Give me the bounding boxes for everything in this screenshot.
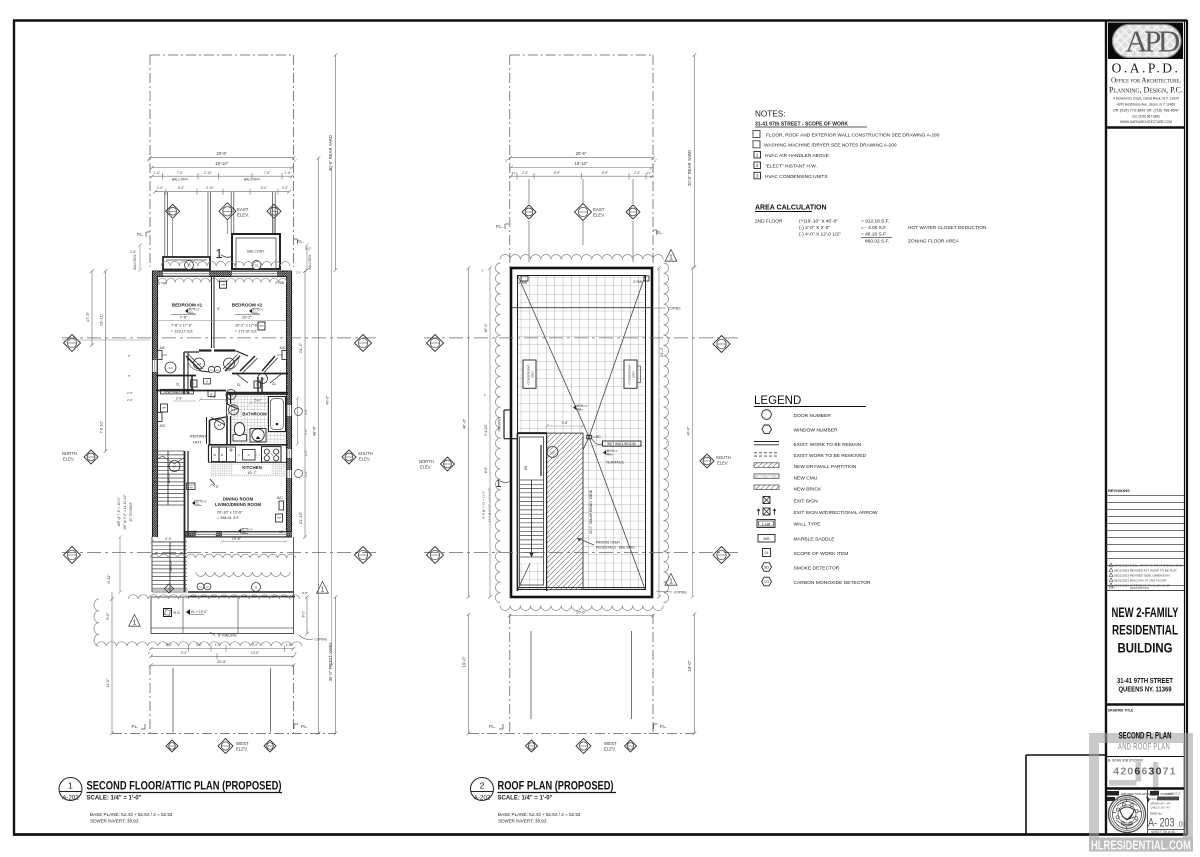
svg-text:SCALE: 1/4" = 1'-0": SCALE: 1/4" = 1'-0": [498, 796, 553, 802]
svg-text:NEW CMU: NEW CMU: [794, 475, 818, 481]
svg-text:NEW BRICK: NEW BRICK: [794, 486, 822, 492]
svg-text:= - 4.00 S.F.: = - 4.00 S.F.: [861, 225, 887, 231]
svg-text:HOT WATER CLOSET DEDUCTION: HOT WATER CLOSET DEDUCTION: [908, 225, 987, 231]
svg-text:6'-9": 6'-9": [602, 171, 608, 175]
svg-text:“ELECT” INSTANT H.W.: “ELECT” INSTANT H.W.: [765, 164, 817, 170]
svg-text:FLOOR, ROOF AND EXTERIOR WALL: FLOOR, ROOF AND EXTERIOR WALL CONSTRUCTI…: [766, 132, 940, 138]
svg-text:2HR: 2HR: [221, 284, 226, 286]
svg-text:10'-7": 10'-7": [247, 471, 257, 475]
svg-text:SOUTH: SOUTH: [358, 451, 373, 456]
svg-text:23: 23: [255, 264, 259, 268]
svg-text:BUILDING: BUILDING: [1118, 641, 1173, 656]
svg-text:R.D.: R.D.: [174, 611, 181, 615]
svg-text:WWW.OAPDARCHITECTURE.COM: WWW.OAPDARCHITECTURE.COM: [1120, 120, 1172, 124]
svg-text:SEWER INVERT: 38.93: SEWER INVERT: 38.93: [498, 819, 547, 824]
svg-text:19'-10": 19'-10": [215, 161, 229, 166]
svg-text:2-6: 2-6: [232, 408, 236, 412]
svg-text:SMOKE DETECTOR: SMOKE DETECTOR: [794, 566, 840, 572]
svg-text:19' TO ROOF: 19' TO ROOF: [129, 502, 133, 521]
svg-text:1'-6": 1'-6": [154, 171, 160, 175]
svg-text:NOTES:: NOTES:: [755, 110, 785, 119]
svg-text:BLK: BLK: [189, 312, 194, 314]
svg-text:2: 2: [480, 781, 485, 791]
svg-text:PEDESTALS - SEE DWG.: PEDESTALS - SEE DWG.: [596, 546, 636, 550]
svg-text:5": 5": [216, 485, 219, 489]
svg-text:7'-6": 7'-6": [264, 171, 270, 175]
svg-text:CL: CL: [176, 383, 180, 387]
svg-text:W.: W.: [213, 453, 216, 457]
svg-text:1: 1: [496, 478, 502, 490]
svg-text:A/C: A/C: [280, 346, 286, 350]
svg-text:4'-3": 4'-3": [165, 537, 173, 541]
svg-text:EXIT SIGN W/DIRECTIONAL ARROW: EXIT SIGN W/DIRECTIONAL ARROW: [794, 510, 878, 516]
svg-text:1: 1: [669, 254, 673, 262]
svg-text:ELEV.: ELEV.: [604, 747, 616, 752]
svg-text:SD: SD: [764, 566, 769, 570]
svg-text:MS: MS: [764, 536, 770, 541]
svg-text:16R @ 7'-6" = 10'-0": 16R @ 7'-6" = 10'-0": [117, 498, 121, 527]
svg-text:ROOF PLAN (PROPOSED): ROOF PLAN (PROPOSED): [498, 781, 614, 793]
svg-text:= 177.07 S.F.: = 177.07 S.F.: [235, 330, 258, 334]
svg-text:EXIST WORK TO BE REMOVED: EXIST WORK TO BE REMOVED: [794, 453, 867, 459]
svg-text:Planning, Design, P.C.: Planning, Design, P.C.: [1109, 86, 1183, 95]
svg-text:16R UP: 16R UP: [167, 472, 171, 483]
svg-text:18 R @ 7.33" = 11'-0": 18 R @ 7.33" = 11'-0": [482, 491, 486, 520]
svg-text:4 Governors Court, Great Nec: 4 Governors Court, Great Neck, N.Y. 1102…: [1113, 97, 1179, 101]
svg-text:P.L.: P.L.: [137, 232, 144, 237]
svg-text:P.L.: P.L.: [489, 724, 496, 729]
svg-text:6'-6": 6'-6": [484, 467, 488, 473]
svg-text:22'-0" SOLAR READY ZONE: 22'-0" SOLAR READY ZONE: [589, 489, 593, 534]
svg-text:(-) 2'-0" X 2'-0": (-) 2'-0" X 2'-0": [799, 225, 830, 231]
svg-text:EAST: EAST: [593, 207, 605, 212]
svg-text:1": 1": [481, 269, 484, 273]
svg-text:COPING: COPING: [315, 638, 328, 642]
svg-text:46'-0": 46'-0": [326, 395, 330, 405]
svg-text:SECOND FLOOR/ATTIC PLAN (PROPO: SECOND FLOOR/ATTIC PLAN (PROPOSED): [87, 781, 282, 793]
svg-text:1": 1": [295, 651, 298, 655]
svg-text:17 T @ 9 1/2" = 13'-5 1/2": 17 T @ 9 1/2" = 13'-5 1/2": [488, 488, 492, 522]
svg-text:BALCONY: BALCONY: [308, 254, 312, 270]
svg-text:CO: CO: [764, 580, 770, 584]
svg-text:A/C: A/C: [160, 346, 166, 350]
svg-text:1: 1: [133, 619, 137, 627]
svg-text:3'-6": 3'-6": [304, 429, 308, 435]
svg-text:A- 203: A- 203: [1148, 816, 1175, 830]
svg-text:2-3: 2-3: [261, 377, 265, 381]
svg-text:BALCONY: BALCONY: [247, 250, 265, 254]
svg-text:SEWER INVERT: 38.93: SEWER INVERT: 38.93: [90, 819, 139, 824]
svg-text:2'-0": 2'-0": [157, 186, 163, 190]
svg-text:CO: CO: [199, 587, 203, 589]
svg-text:PIPE: PIPE: [188, 488, 193, 490]
svg-text:HLRESIDENTIAL.COM: HLRESIDENTIAL.COM: [1091, 838, 1191, 853]
svg-text:ELEV.: ELEV.: [63, 457, 75, 462]
svg-text:2HR: 2HR: [259, 326, 264, 328]
svg-text:2'-10": 2'-10": [204, 171, 212, 175]
svg-text:9'-6": 9'-6": [562, 421, 570, 425]
svg-text:Off. (516) 773-3842 O: Off. (516) 773-3842 Off. (718) 798-9547: [1113, 109, 1179, 113]
svg-text:6'-11": 6'-11": [107, 574, 111, 584]
svg-text:AREA CALCULATION: AREA CALCULATION: [755, 205, 827, 212]
svg-text:MARBLE SADDLE: MARBLE SADDLE: [794, 537, 836, 543]
svg-text:P.L.: P.L.: [301, 724, 308, 729]
svg-text:1-HR: 1-HR: [762, 522, 771, 526]
svg-text:2'-3": 2'-3": [522, 171, 528, 175]
svg-text:2-8: 2-8: [197, 362, 201, 366]
svg-text:DN: DN: [524, 465, 528, 470]
svg-text:20'-10" x 13'-6": 20'-10" x 13'-6": [217, 511, 243, 515]
svg-text:860.02 S.F.: 860.02 S.F.: [865, 239, 889, 245]
svg-text:01: 01: [764, 551, 768, 555]
svg-text:= 286.41 S.F.: = 286.41 S.F.: [217, 516, 240, 520]
svg-text:3' RW: 3' RW: [275, 281, 285, 285]
svg-text:PROJECT 2019-003: PROJECT 2019-003: [1150, 797, 1176, 801]
svg-text:20'-6": 20'-6": [576, 151, 587, 156]
svg-text:CARBON MONOXIDE DETECTOR: CARBON MONOXIDE DETECTOR: [794, 580, 872, 586]
svg-text:DESCRIPTION: DESCRIPTION: [1130, 586, 1149, 590]
svg-text:19'-0": 19'-0": [687, 660, 692, 671]
svg-text:COPING: COPING: [668, 307, 681, 311]
svg-text:1: 1: [669, 578, 673, 586]
svg-text:(+)19'-10" X 46'-0": (+)19'-10" X 46'-0": [799, 219, 838, 225]
svg-text:09/21/2023 REVISED SIDE. DIM: 09/21/2023 REVISED SIDE. DIMENSION: [1114, 574, 1170, 578]
svg-text:A-202: A-202: [62, 795, 79, 802]
svg-text:5": 5": [128, 354, 131, 358]
svg-text:16R UP: 16R UP: [169, 560, 173, 571]
svg-text:P.L.: P.L.: [297, 239, 304, 244]
svg-text:EAST: EAST: [237, 207, 249, 212]
svg-text:2'-6": 2'-6": [176, 397, 182, 401]
svg-text:Office for Architecture,: Office for Architecture,: [1111, 76, 1181, 85]
svg-text:4/29/2023: 4/29/2023: [1168, 792, 1181, 796]
svg-text:HOT: HOT: [193, 440, 202, 445]
svg-text:7'-6" x 17'-6": 7'-6" x 17'-6": [171, 324, 193, 328]
svg-text:1": 1": [148, 651, 151, 655]
svg-text:6'-9": 6'-9": [554, 171, 560, 175]
svg-text:2HR: 2HR: [162, 408, 167, 410]
svg-text:2'-2": 2'-2": [296, 271, 302, 275]
svg-text:2-9: 2-9: [172, 465, 176, 469]
svg-text:5'-0": 5'-0": [255, 399, 263, 403]
svg-text:3' RW: 3' RW: [158, 282, 168, 286]
svg-text:ELEV.: ELEV.: [717, 461, 729, 466]
svg-text:QUEENS NY. 11369: QUEENS NY. 11369: [1119, 685, 1172, 694]
svg-text:ZONING FLOOR AREA: ZONING FLOOR AREA: [908, 239, 959, 245]
svg-text:9'-6 1/2": 9'-6 1/2": [484, 424, 488, 436]
svg-text:CL: CL: [237, 383, 241, 387]
svg-text:BLK: BLK: [607, 454, 612, 456]
svg-text:7'-6": 7'-6": [180, 315, 189, 320]
svg-text:NORTH: NORTH: [419, 459, 434, 464]
svg-text:CO: CO: [210, 370, 214, 372]
svg-text:D: D: [206, 380, 208, 384]
svg-text:ELEV.: ELEV.: [237, 213, 249, 218]
svg-text:5": 5": [128, 374, 131, 378]
svg-text:2-7: 2-7: [218, 423, 222, 427]
svg-text:4'-8": 4'-8": [302, 591, 308, 595]
svg-text:# BY: # BY: [1109, 586, 1115, 590]
svg-text:PARAPET: PARAPET: [498, 417, 502, 432]
svg-text:AND ROOF PLAN: AND ROOF PLAN: [1118, 742, 1170, 752]
svg-text:SECOND FL PLAN: SECOND FL PLAN: [1119, 731, 1172, 741]
svg-text:4370 Hutchinson Ave., Bronx,: 4370 Hutchinson Ave., Bronx, N.Y. 10466: [1117, 103, 1175, 107]
svg-text:2HR: 2HR: [277, 518, 282, 520]
svg-text:= 129.17 S.F.: = 129.17 S.F.: [171, 330, 194, 334]
svg-text:RD: RD: [596, 435, 601, 439]
svg-text:2-9: 2-9: [168, 366, 172, 370]
svg-text:31-41 97th STREET - SCOPE OF W: 31-41 97th STREET - SCOPE OF WORK: [755, 122, 848, 128]
svg-text:WET WALL BELOW: WET WALL BELOW: [607, 442, 636, 446]
svg-text:2'-0": 2'-0": [196, 643, 202, 647]
svg-text:420663071: 420663071: [1113, 766, 1176, 778]
svg-text:6" RAILING: 6" RAILING: [218, 634, 237, 638]
svg-text:24'-2": 24'-2": [298, 342, 303, 353]
svg-text:7'-6": 7'-6": [177, 171, 183, 175]
svg-text:30'-0" FRONT YARD: 30'-0" FRONT YARD: [328, 643, 333, 682]
svg-text:COPING: COPING: [674, 591, 687, 595]
svg-text:13'-11": 13'-11": [99, 313, 104, 326]
svg-text:TERRACE: TERRACE: [606, 461, 625, 465]
svg-text:2'-6": 2'-6": [130, 250, 136, 254]
svg-text:9'-0": 9'-0": [252, 643, 258, 647]
svg-text:09/21/2023 ENCL. STAIR TO RO: 09/21/2023 ENCL. STAIR TO ROOF B-BULKHEA…: [1114, 564, 1183, 568]
svg-text:2'-3": 2'-3": [634, 171, 640, 175]
svg-text:10'-2" x 17'-6": 10'-2" x 17'-6": [235, 324, 259, 328]
svg-text:20'-6": 20'-6": [576, 611, 586, 615]
svg-text:INSTANT: INSTANT: [190, 434, 207, 439]
svg-text:= 912.18 S.F.: = 912.18 S.F.: [861, 219, 889, 225]
svg-text:2'-6": 2'-6": [127, 398, 133, 402]
svg-text:P.L.: P.L.: [132, 724, 139, 729]
svg-text:HVAC CONDENSING UNITS: HVAC CONDENSING UNITS: [765, 174, 828, 180]
svg-text:1: 1: [68, 781, 73, 791]
svg-text:46'-8": 46'-8": [461, 418, 466, 429]
svg-text:20'-6": 20'-6": [216, 151, 227, 156]
svg-text:SCOPE OF WORK ITEM: SCOPE OF WORK ITEM: [794, 551, 849, 557]
svg-text:A/C: A/C: [160, 424, 166, 428]
svg-text:2ND FLOOR: 2ND FLOOR: [755, 219, 783, 225]
svg-text:EXIT SIGN: EXIT SIGN: [794, 498, 819, 504]
svg-text:P.L.: P.L.: [496, 224, 503, 229]
svg-text:5'-0": 5'-0": [106, 612, 110, 620]
svg-text:3'-10": 3'-10": [206, 186, 214, 190]
svg-text:WALL TYPE: WALL TYPE: [794, 522, 822, 528]
svg-text:BEDROOM #1: BEDROOM #1: [172, 303, 203, 308]
svg-text:DINING ROOM: DINING ROOM: [223, 497, 254, 502]
svg-text:ELEV.: ELEV.: [593, 213, 605, 218]
svg-text:UNIT: UNIT: [531, 371, 535, 378]
svg-text:2-6: 2-6: [227, 362, 231, 366]
svg-text:16'-1": 16'-1": [484, 323, 488, 333]
svg-text:O.A.P.D.: O.A.P.D.: [1112, 61, 1181, 76]
svg-text:7'-6": 7'-6": [210, 395, 218, 399]
svg-text:10'-2": 10'-2": [242, 315, 253, 320]
svg-text:1'-6": 1'-6": [285, 171, 291, 175]
svg-text:20'-6": 20'-6": [217, 660, 227, 664]
svg-text:BLK: BLK: [242, 532, 247, 534]
svg-text:5'-3": 5'-3": [166, 643, 172, 647]
svg-text:HVAC AIR HANDLER ABOVE: HVAC AIR HANDLER ABOVE: [765, 153, 829, 159]
svg-text:BLK: BLK: [577, 409, 582, 411]
svg-text:2'-0": 2'-0": [282, 186, 288, 190]
svg-text:APD: APD: [1125, 24, 1180, 59]
svg-text:ELEV.: ELEV.: [359, 457, 371, 462]
svg-text:NEW DRYWALL PARTITION: NEW DRYWALL PARTITION: [794, 464, 857, 470]
svg-text:WEST: WEST: [236, 741, 249, 746]
svg-text:OPEN SHELF ABOVE: OPEN SHELF ABOVE: [164, 390, 190, 394]
svg-text:A/C: A/C: [277, 496, 283, 500]
svg-text:DRAWING TITLE: DRAWING TITLE: [1108, 709, 1133, 713]
svg-text:1: 1: [216, 247, 223, 261]
svg-text:LEGEND: LEGEND: [754, 395, 801, 407]
svg-text:11": 11": [279, 530, 285, 534]
svg-text:ELEV.: ELEV.: [236, 747, 248, 752]
svg-text:SD: SD: [206, 587, 209, 589]
svg-text:-2: -2: [247, 453, 250, 457]
svg-text:B- SCAN JOB STICKER: B- SCAN JOB STICKER: [1108, 759, 1143, 763]
svg-text:BALCONY: BALCONY: [244, 178, 261, 182]
svg-text:20'-0" REAR YARD: 20'-0" REAR YARD: [687, 150, 692, 186]
svg-text:21'-10": 21'-10": [298, 511, 303, 524]
svg-text:WASHING MACHINE /DRYER SEE NOT: WASHING MACHINE /DRYER SEE NOTES DRAWING…: [764, 143, 897, 149]
svg-text:WEST: WEST: [604, 741, 617, 746]
svg-text:NORTH: NORTH: [62, 451, 77, 456]
svg-text:SHEET 7/6 of 40: SHEET 7/6 of 40: [1151, 830, 1175, 834]
svg-text:3' RW: 3' RW: [633, 280, 643, 284]
svg-text:SD: SD: [216, 370, 219, 372]
svg-text:(-) 4'-0" X 12'-0 1/2": (-) 4'-0" X 12'-0 1/2": [799, 232, 841, 238]
svg-text:D.: D.: [221, 453, 224, 457]
svg-text:46'-0": 46'-0": [687, 426, 691, 436]
svg-text:09/21/2023 REVISED ATT. ROOF: 09/21/2023 REVISED ATT. ROOF TO BE FLAT: [1114, 569, 1177, 573]
svg-text:2-10: 2-10: [550, 452, 555, 455]
svg-text:14'-0": 14'-0": [106, 678, 110, 688]
svg-text:BALCONY: BALCONY: [133, 254, 137, 270]
svg-text:UNIT: UNIT: [632, 371, 636, 378]
svg-text:ELEV.: ELEV.: [420, 465, 432, 470]
svg-text:.01: .01: [1177, 820, 1187, 829]
svg-text:P.L.: P.L.: [660, 724, 667, 729]
svg-text:= 48.16 S.F.: = 48.16 S.F.: [861, 232, 887, 238]
svg-text:17'-6": 17'-6": [85, 311, 90, 322]
svg-text:Cel. (516) 967-3842: Cel. (516) 967-3842: [1132, 115, 1160, 119]
svg-text:1: 1: [321, 586, 325, 594]
svg-text:SOUTH: SOUTH: [716, 455, 731, 460]
svg-text:EL + 10'-0": EL + 10'-0": [191, 610, 208, 614]
svg-text:13'-6": 13'-6": [232, 537, 242, 541]
svg-text:30'-0" REAR YARD: 30'-0" REAR YARD: [328, 135, 333, 171]
svg-text:DOOR NUMBER: DOOR NUMBER: [794, 413, 832, 419]
svg-text:REVISIONS: REVISIONS: [1108, 488, 1130, 493]
svg-text:2'-6": 2'-6": [304, 471, 308, 477]
svg-text:10'-6": 10'-6": [251, 651, 259, 655]
svg-text:CL: CL: [272, 382, 276, 386]
svg-text:2'-6": 2'-6": [304, 409, 308, 415]
svg-text:19'-0": 19'-0": [461, 656, 466, 667]
svg-text:BLK: BLK: [196, 504, 201, 506]
svg-text:6'-0": 6'-0": [261, 186, 267, 190]
svg-text:1'1": 1'1": [512, 171, 517, 175]
svg-text:19'-10": 19'-10": [575, 161, 589, 166]
svg-text:BASE PLANE: 52.43 + 52.62 / 2: BASE PLANE: 52.43 + 52.62 / 2 = 52.53: [498, 812, 581, 817]
svg-text:BALCONY: BALCONY: [172, 178, 189, 182]
svg-text:9'-4": 9'-4": [181, 651, 187, 655]
svg-text:6'-0": 6'-0": [302, 610, 306, 618]
svg-text:A-202: A-202: [474, 795, 491, 802]
svg-text:1'-6": 1'-6": [286, 643, 292, 647]
svg-text:2'-2": 2'-2": [304, 450, 308, 456]
svg-text:PAVERS OVER: PAVERS OVER: [596, 541, 620, 545]
svg-text:6'-0": 6'-0": [178, 186, 184, 190]
svg-text:EXIST. WORK TO BE REMAIN: EXIST. WORK TO BE REMAIN: [794, 442, 862, 448]
svg-text:NEW 2-FAMILY: NEW 2-FAMILY: [1112, 605, 1179, 620]
svg-text:2'-6": 2'-6": [127, 391, 133, 395]
svg-text:BEDROOM #2: BEDROOM #2: [232, 303, 263, 308]
svg-text:KITCHEN: KITCHEN: [242, 465, 262, 470]
svg-text:7'-6 1/2": 7'-6 1/2": [100, 420, 104, 434]
svg-text:1'-7": 1'-7": [215, 643, 221, 647]
svg-text:5'-0": 5'-0": [305, 247, 311, 251]
svg-text:BLK: BLK: [253, 312, 258, 314]
svg-text:RESIDENTIAL: RESIDENTIAL: [1112, 623, 1178, 638]
svg-text:48'-8": 48'-8": [312, 425, 317, 436]
svg-text:24'-2": 24'-2": [659, 346, 664, 357]
svg-text:CHECK. BY: AY: CHECK. BY: AY: [1150, 806, 1170, 810]
svg-text:BASE PLANE: 52.43 + 52.62 / 2: BASE PLANE: 52.43 + 52.62 / 2 = 52.53: [90, 812, 173, 817]
svg-text:DATE:: DATE:: [1150, 792, 1158, 796]
svg-text:09/21/2023 BALCONY AT 2ND FL: 09/21/2023 BALCONY AT 2ND FLOOR: [1114, 579, 1167, 583]
svg-text:16T @ 9'-0" = 11'-10 1/2": 16T @ 9'-0" = 11'-10 1/2": [123, 494, 127, 529]
svg-text:1'1": 1'1": [647, 171, 652, 175]
svg-text:SCALE: 1/4" = 1'-0": SCALE: 1/4" = 1'-0": [87, 796, 142, 802]
svg-text:WINDOW NUMBER: WINDOW NUMBER: [794, 428, 838, 434]
svg-text:BATHROOM: BATHROOM: [242, 411, 267, 416]
svg-text:3' RW: 3' RW: [518, 281, 528, 285]
svg-text:LIVING/DINING ROOM: LIVING/DINING ROOM: [215, 502, 261, 507]
